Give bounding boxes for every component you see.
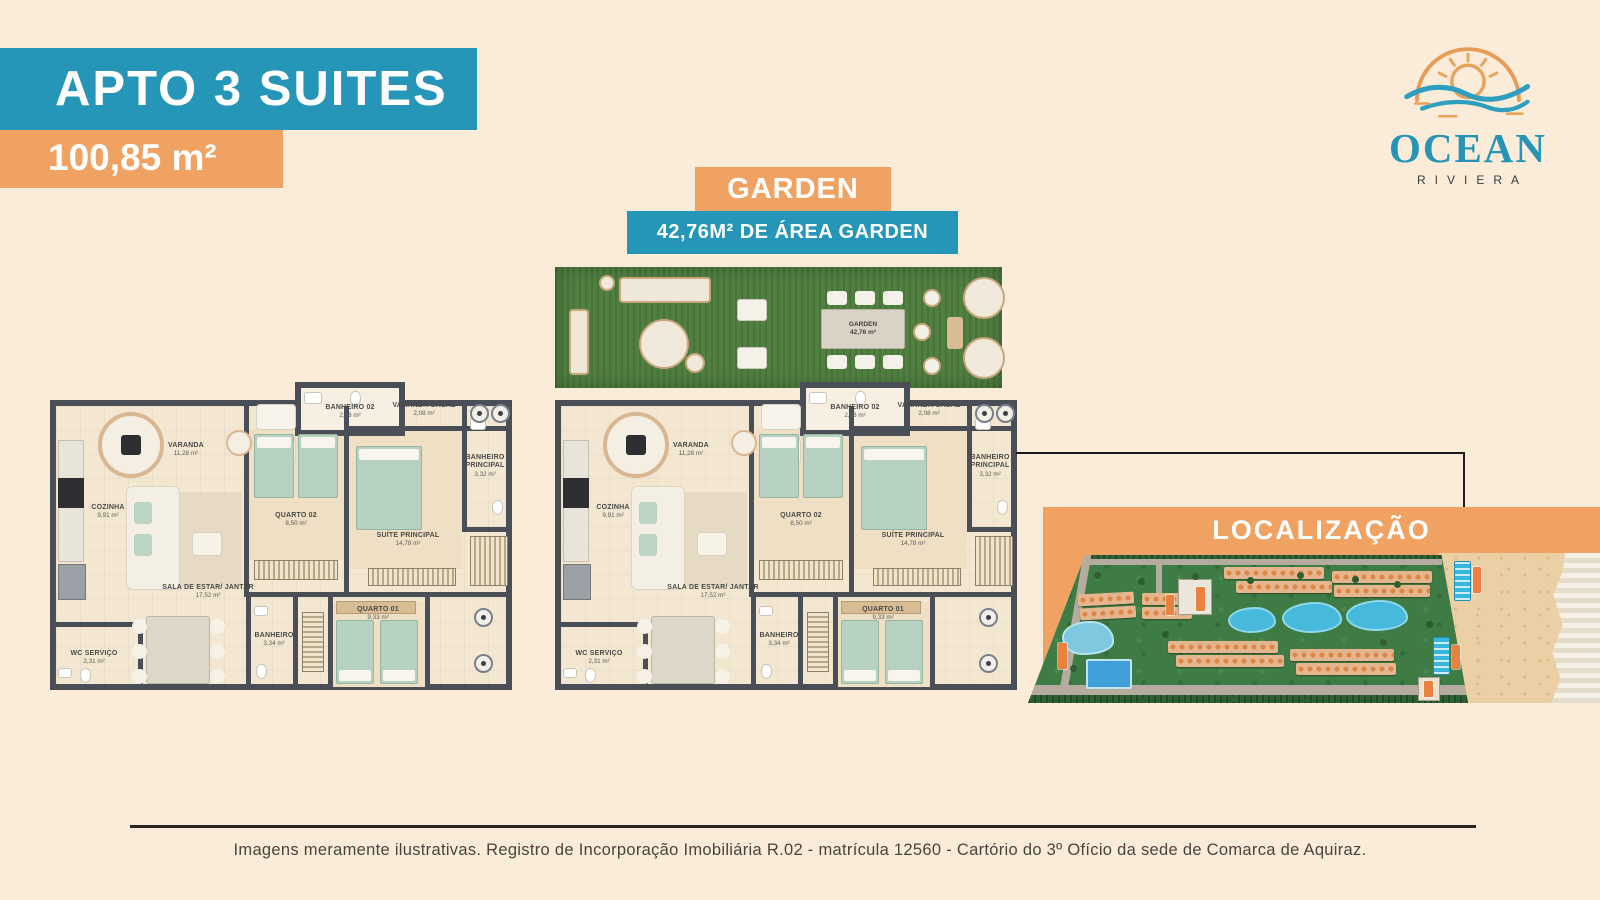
wall (555, 622, 647, 627)
room-label-banheiro-principal: BANHEIRO PRINCIPAL3,32 m² (456, 454, 514, 478)
footer-disclaimer: Imagens meramente ilustrativas. Registro… (0, 841, 1600, 860)
logo-brand-text: OCEAN (1368, 129, 1568, 167)
sports-court (1086, 659, 1132, 689)
building-row (1080, 606, 1137, 621)
single-bed (380, 620, 418, 684)
wardrobe (254, 560, 338, 580)
apartment-title-banner: APTO 3 SUITES (0, 48, 477, 130)
floorplan: VARANDA11,28 m² COZINHA9,91 m² BANHEIRO … (50, 382, 512, 690)
garden-dining-chairs (827, 291, 847, 305)
room-label-cozinha: COZINHA9,91 m² (571, 504, 655, 520)
wardrobe (759, 560, 843, 580)
single-bed (885, 620, 923, 684)
room-label-sala: SALA DE ESTAR/ JANTAR17,52 m² (663, 584, 763, 600)
double-bed (356, 446, 422, 530)
clubhouse (1178, 579, 1212, 615)
toilet (761, 664, 772, 679)
double-bed (861, 446, 927, 530)
hedge (1028, 695, 1468, 703)
highlighted-building (1454, 561, 1471, 601)
ac-unit (474, 608, 493, 627)
wall (930, 597, 935, 690)
ac-unit (979, 654, 998, 673)
laundry-closet (807, 612, 829, 672)
wall (425, 597, 430, 690)
signage (1166, 595, 1174, 615)
room-label-quarto-02: QUARTO 028,50 m² (254, 512, 338, 528)
dining-chairs (132, 619, 147, 634)
room-label-varanda-casal: VARANDA CASAL2,08 m² (380, 402, 468, 418)
closet (470, 536, 508, 586)
service-sink (58, 668, 72, 678)
kitchen-fridge (563, 564, 591, 600)
ac-unit (474, 654, 493, 673)
garden-pouf (923, 289, 941, 307)
room-label-suite-principal: SUÍTE PRINCIPAL14,78 m² (358, 532, 458, 548)
garden-banner: GARDEN (695, 167, 891, 211)
garden-planter (947, 317, 963, 349)
footer-divider (130, 825, 1476, 828)
toilet (997, 500, 1008, 515)
dining-table (651, 616, 715, 684)
wall (967, 527, 1017, 532)
garden-area-value: 42,76 m² (850, 329, 876, 337)
room-label-wc-servico: WC SERVIÇO2,31 m² (559, 650, 639, 666)
pool (1228, 607, 1276, 633)
garden-planter (599, 275, 615, 291)
kids-water-park (1062, 621, 1114, 655)
dining-chairs (210, 619, 225, 634)
single-bed (841, 620, 879, 684)
garden-side-table (685, 353, 705, 373)
pool (1346, 600, 1408, 631)
single-bed (298, 434, 338, 498)
garden-lawn: GARDEN 42,76 m² (555, 267, 1002, 388)
bathroom-sink (759, 606, 773, 616)
floorplan-garden: VARANDA11,28 m² COZINHA9,91 m² BANHEIRO … (555, 382, 1017, 690)
room-label-banheiro-principal: BANHEIRO PRINCIPAL3,32 m² (961, 454, 1019, 478)
ac-unit (491, 404, 510, 423)
room-label-banheiro: BANHEIRO3,34 m² (246, 632, 302, 648)
sun-wave-icon (1383, 26, 1553, 130)
wall (50, 622, 142, 627)
closet (975, 536, 1013, 586)
trees (1042, 569, 1049, 576)
bathroom-sink (254, 606, 268, 616)
building-tag (1452, 645, 1460, 669)
signage (1058, 643, 1067, 669)
garden-round-table (639, 319, 689, 369)
room-label-varanda: VARANDA11,28 m² (144, 442, 228, 458)
room-label-varanda-casal: VARANDA CASAL2,08 m² (885, 402, 973, 418)
ac-unit (996, 404, 1015, 423)
bathroom-sink (304, 392, 322, 404)
sofa-cushion (134, 534, 152, 556)
signage (1196, 587, 1205, 611)
callout-line-horizontal (1016, 452, 1465, 454)
garden-daybed (963, 277, 1005, 319)
dining-chairs (637, 619, 652, 634)
garden-label: GARDEN (849, 321, 877, 329)
garden-sofa (619, 277, 711, 303)
toilet (80, 668, 91, 683)
building-row (1168, 641, 1278, 653)
toilet (256, 664, 267, 679)
room-label-varanda: VARANDA11,28 m² (649, 442, 733, 458)
garden-dining-chairs (827, 355, 847, 369)
brochure-page: { "header": { "title": "APTO 3 SUITES", … (0, 0, 1600, 900)
garden-chair (737, 299, 767, 321)
garden-area-banner: 42,76M² DE ÁREA GARDEN (627, 211, 958, 254)
ac-unit (470, 404, 489, 423)
wall (833, 597, 838, 690)
toilet (585, 668, 596, 683)
wall (849, 406, 854, 597)
garden-chair (737, 347, 767, 369)
building-row (1236, 581, 1332, 593)
lounge-chair (256, 404, 296, 430)
balcony-side-table (731, 430, 757, 456)
wall (749, 592, 1017, 597)
wall (462, 527, 512, 532)
wall (344, 406, 349, 597)
apartment-area-banner: 100,85 m² (0, 130, 283, 188)
building-tag (1473, 567, 1481, 593)
building-row (1078, 592, 1135, 607)
signage (1424, 681, 1433, 697)
building-row (1332, 571, 1432, 583)
logo-sub-text: RIVIERA (1368, 173, 1568, 187)
wardrobe (873, 568, 961, 586)
single-bed (254, 434, 294, 498)
laundry-closet (302, 612, 324, 672)
sofa-cushion (639, 534, 657, 556)
single-bed (759, 434, 799, 498)
wall (244, 592, 512, 597)
highlighted-building (1433, 637, 1450, 675)
kitchen-fridge (58, 564, 86, 600)
wall (349, 426, 512, 431)
lounge-chair (761, 404, 801, 430)
building-row (1224, 567, 1324, 579)
room-label-cozinha: COZINHA9,91 m² (66, 504, 150, 520)
dining-chairs (715, 619, 730, 634)
wardrobe (368, 568, 456, 586)
garden-pouf (913, 323, 931, 341)
building-row (1176, 655, 1284, 667)
building-row (1334, 585, 1430, 597)
single-bed (336, 620, 374, 684)
floorplan: VARANDA11,28 m² COZINHA9,91 m² BANHEIRO … (555, 382, 1017, 690)
bathroom-sink (809, 392, 827, 404)
wall (854, 426, 1017, 431)
pool (1282, 602, 1342, 633)
coffee-table (697, 532, 727, 556)
coffee-table (192, 532, 222, 556)
dining-table (146, 616, 210, 684)
single-bed (803, 434, 843, 498)
balcony-side-table (226, 430, 252, 456)
floorplan-standard: VARANDA11,28 m² COZINHA9,91 m² BANHEIRO … (50, 382, 512, 690)
room-label-quarto-02: QUARTO 028,50 m² (759, 512, 843, 528)
room-label-wc-servico: WC SERVIÇO2,31 m² (54, 650, 134, 666)
ocean-riviera-logo: OCEAN RIVIERA (1368, 26, 1568, 186)
room-label-banheiro: BANHEIRO3,34 m² (751, 632, 807, 648)
ac-unit (975, 404, 994, 423)
garden-sofa (569, 309, 589, 375)
room-label-quarto-01: QUARTO 019,33 m² (841, 606, 925, 622)
building-row (1296, 663, 1396, 675)
room-label-quarto-01: QUARTO 019,33 m² (336, 606, 420, 622)
wall (328, 597, 333, 690)
site-map (1020, 553, 1600, 703)
garden-pouf (923, 357, 941, 375)
garden-daybed (963, 337, 1005, 379)
garden-dining-table: GARDEN 42,76 m² (821, 309, 905, 349)
toilet (492, 500, 503, 515)
room-label-suite-principal: SUÍTE PRINCIPAL14,78 m² (863, 532, 963, 548)
road (1081, 559, 1442, 565)
service-sink (563, 668, 577, 678)
ac-unit (979, 608, 998, 627)
resort-grounds (1028, 555, 1468, 703)
location-title: LOCALIZAÇÃO (1043, 515, 1600, 546)
building-row (1290, 649, 1394, 661)
room-label-sala: SALA DE ESTAR/ JANTAR17,52 m² (158, 584, 258, 600)
